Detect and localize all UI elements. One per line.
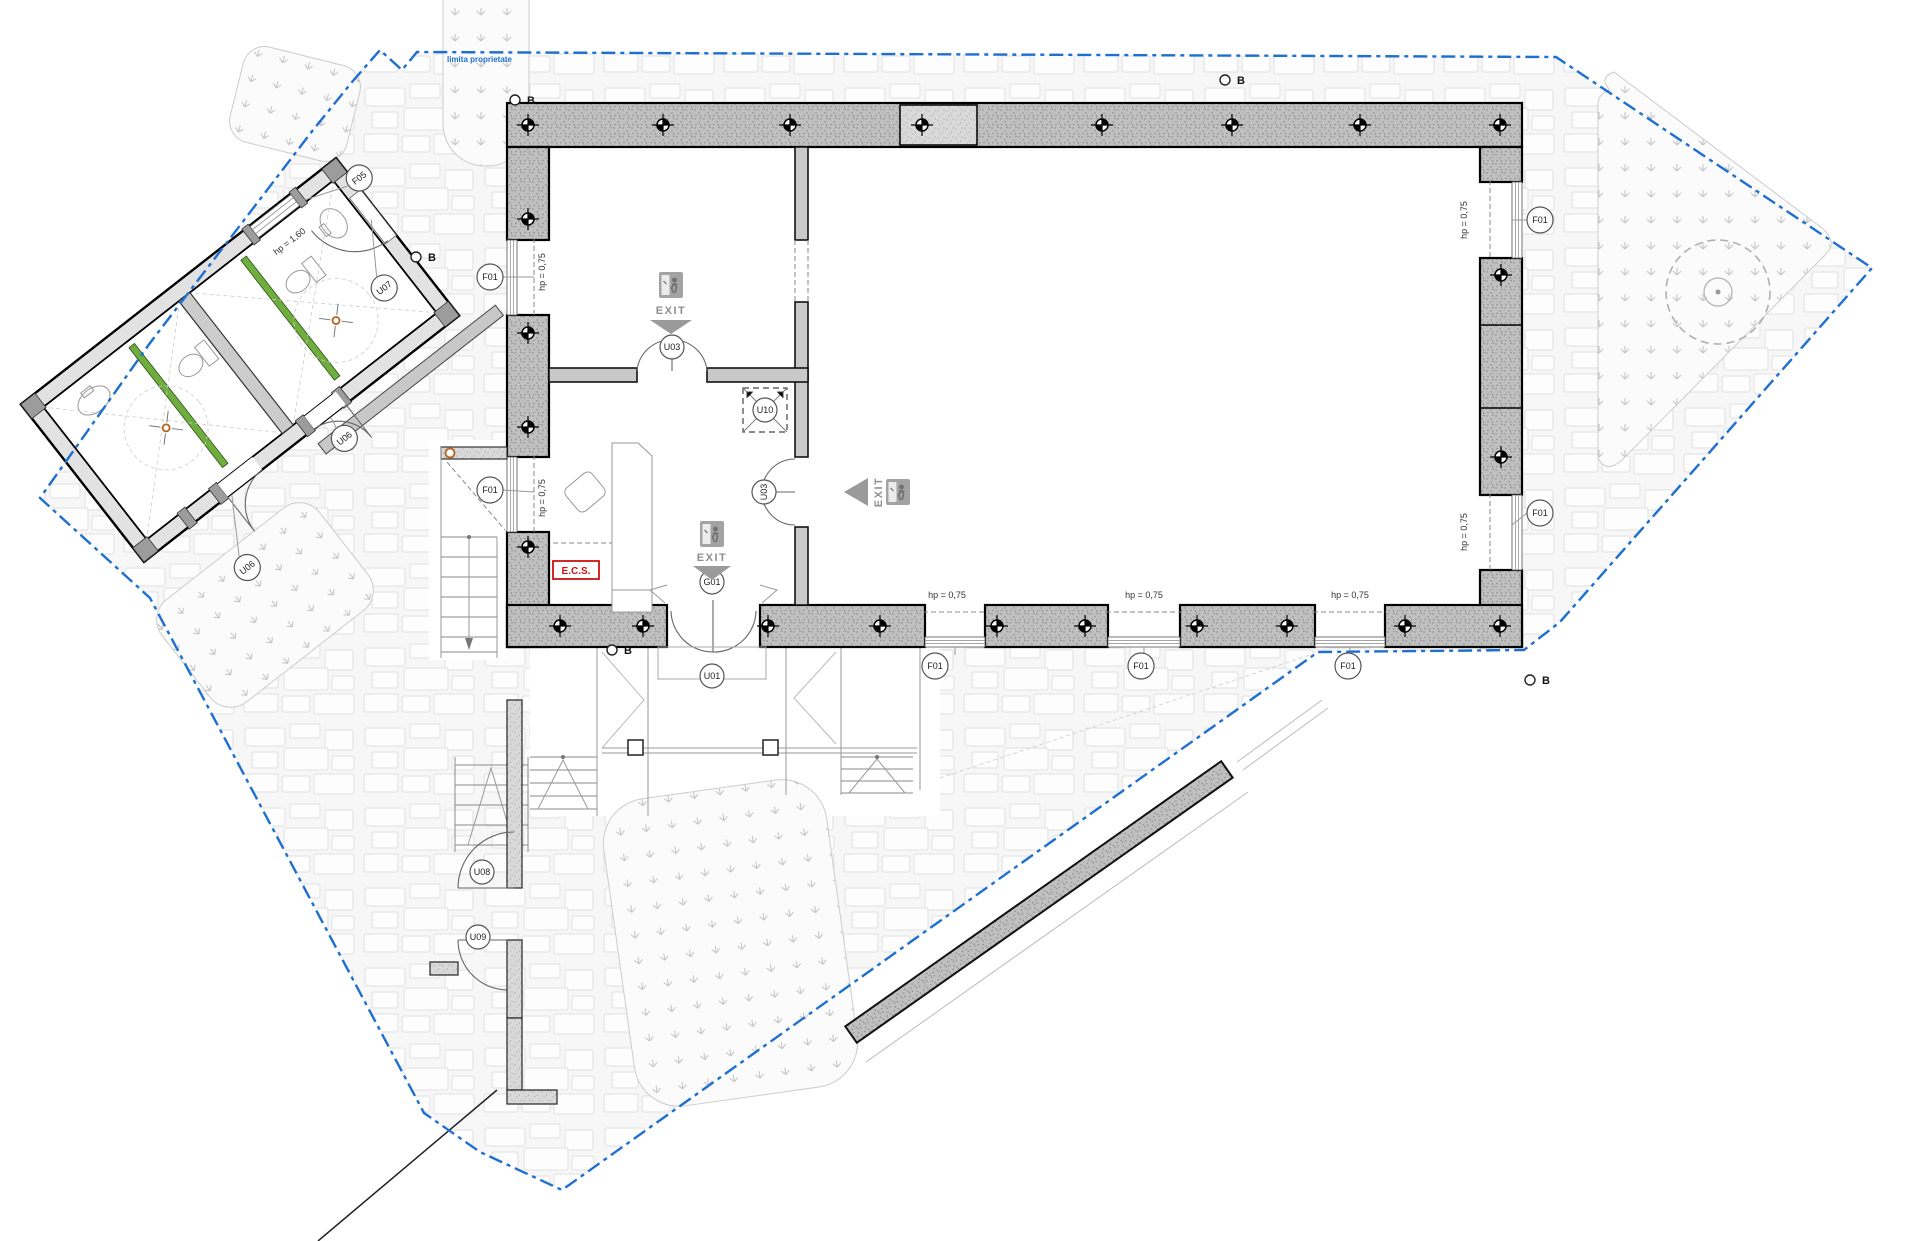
exit-label: EXIT xyxy=(656,305,686,317)
planting-bed-south xyxy=(598,774,864,1112)
door-tag-u09-label: U09 xyxy=(470,932,487,942)
window-tag-f01: F01 xyxy=(482,272,498,282)
door-tag-u03-vestibule: U03 xyxy=(664,342,681,352)
hatch-tag-u10: U10 xyxy=(757,405,774,415)
exit-label: EXIT xyxy=(873,477,885,507)
window-tag-f01: F01 xyxy=(1532,508,1548,518)
door-tag-u01: U01 xyxy=(704,671,721,681)
window-tag-f01: F01 xyxy=(1340,661,1356,671)
downspout-marker xyxy=(446,449,455,458)
ecs-box: E.C.S. xyxy=(553,561,599,579)
hp-075-west-lower: hp = 0,75 xyxy=(537,479,547,517)
floor-plan-sheet: U08 U09 xyxy=(0,0,1920,1241)
building-footprint xyxy=(507,103,1522,647)
section-marker-b: B xyxy=(1237,75,1245,87)
window-tag-f01: F01 xyxy=(1532,215,1548,225)
hp-075-east-lower: hp = 0,75 xyxy=(1459,513,1469,551)
hp-075-south-1: hp = 0,75 xyxy=(928,590,966,600)
section-marker-b: B xyxy=(624,645,632,657)
window-tag-f01: F01 xyxy=(927,661,943,671)
section-marker-b: B xyxy=(428,252,436,264)
ecs-label: E.C.S. xyxy=(562,566,591,577)
window-tag-f01: F01 xyxy=(1133,661,1149,671)
door-tag-u08-label: U08 xyxy=(474,867,491,877)
exit-icon xyxy=(659,272,683,298)
exit-icon xyxy=(886,479,910,505)
section-marker-b: B xyxy=(527,95,535,107)
exit-label: EXIT xyxy=(697,552,727,564)
door-tag-u03-hall: U03 xyxy=(759,484,769,501)
hp-075-east-upper: hp = 0,75 xyxy=(1459,201,1469,239)
exit-icon xyxy=(700,521,724,547)
floor-plan-drawing: U08 U09 xyxy=(0,0,1920,1241)
section-marker-b: B xyxy=(1542,675,1550,687)
window-tag-f01: F01 xyxy=(482,485,498,495)
hp-075-south-2: hp = 0,75 xyxy=(1125,590,1163,600)
hp-075-west-upper: hp = 0,75 xyxy=(537,253,547,291)
property-line-label: limita proprietate xyxy=(447,55,512,64)
hp-075-south-3: hp = 0,75 xyxy=(1331,590,1369,600)
